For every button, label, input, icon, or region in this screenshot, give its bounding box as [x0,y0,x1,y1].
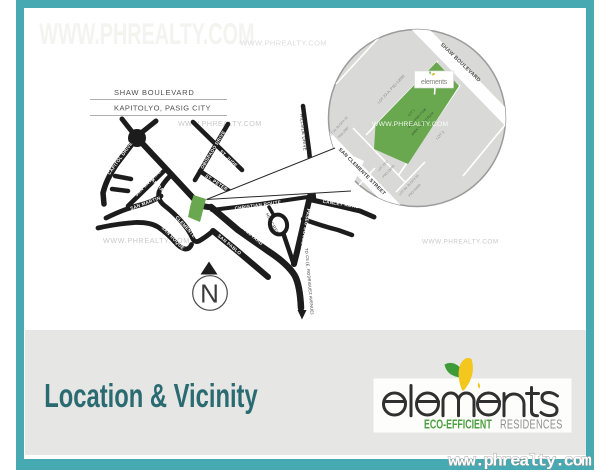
svg-text:WWW.PHREALTY.COM: WWW.PHREALTY.COM [422,239,499,246]
svg-text:WWW.PHREALTY.COM: WWW.PHREALTY.COM [372,121,448,128]
svg-text:WWW.PHREALTY.COM: WWW.PHREALTY.COM [240,39,327,48]
svg-text:elements: elements [421,79,448,86]
svg-text:WWW.PHREALTY.COM: WWW.PHREALTY.COM [39,18,254,51]
svg-text:KAPITOLYO, PASIG CITY: KAPITOLYO, PASIG CITY [114,104,211,113]
svg-text:RESIDENCES: RESIDENCES [500,418,563,432]
svg-text:ECO-EFFICIENT: ECO-EFFICIENT [424,418,492,432]
svg-text:N: N [200,279,219,309]
svg-text:WWW.PHREALTY.COM: WWW.PHREALTY.COM [178,119,262,128]
svg-text:SHAW BOULEVARD: SHAW BOULEVARD [114,88,195,97]
svg-text:Location & Vicinity: Location & Vicinity [44,378,257,415]
svg-text:www.phrealty.com: www.phrealty.com [448,453,592,471]
